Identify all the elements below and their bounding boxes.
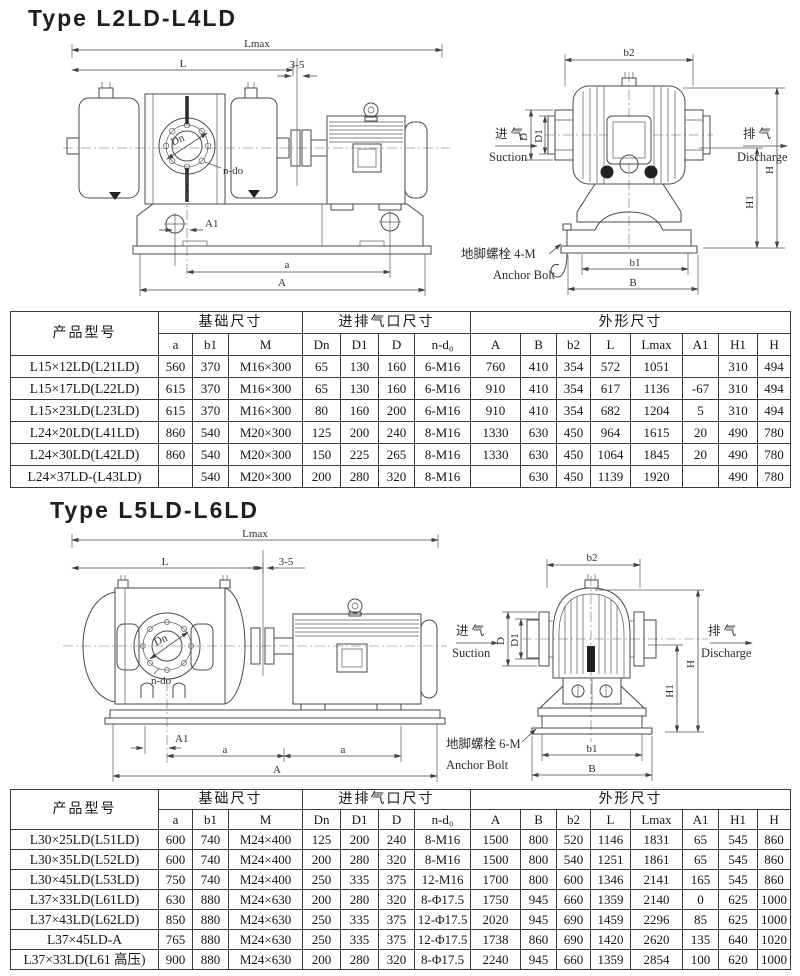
value-cell: 8-M16 bbox=[415, 466, 471, 488]
value-cell: 310 bbox=[719, 378, 758, 400]
value-cell: 682 bbox=[591, 400, 631, 422]
value-cell: 740 bbox=[193, 850, 229, 870]
model-cell: L30×25LD(L51LD) bbox=[11, 830, 159, 850]
dim-label-a: a bbox=[285, 259, 290, 271]
dim-label-a-total: A bbox=[273, 764, 281, 776]
model-cell: L15×17LD(L22LD) bbox=[11, 378, 159, 400]
value-cell: 150 bbox=[303, 444, 341, 466]
value-cell: 200 bbox=[341, 830, 379, 850]
value-cell: 6-M16 bbox=[415, 400, 471, 422]
value-cell: M20×300 bbox=[229, 444, 303, 466]
value-cell: 160 bbox=[379, 356, 415, 378]
value-cell: 8-Φ17.5 bbox=[415, 890, 471, 910]
value-cell: 740 bbox=[193, 870, 229, 890]
value-cell: 945 bbox=[521, 910, 557, 930]
discharge-label-cn: 排 气 bbox=[708, 623, 737, 638]
value-cell: 1000 bbox=[758, 890, 791, 910]
section2-spec-table: 产品型号 基础尺寸 进排气口尺寸 外形尺寸 a b1 M Dn D1 D n-d… bbox=[10, 789, 791, 970]
value-cell: 860 bbox=[758, 870, 791, 890]
header-col: H1 bbox=[719, 334, 758, 356]
value-cell: 625 bbox=[719, 890, 758, 910]
dim-label-gap: 3-5 bbox=[290, 59, 305, 71]
header-col: Lmax bbox=[631, 810, 683, 830]
value-cell: 490 bbox=[719, 422, 758, 444]
catalog-page: Type L2LD-L4LD bbox=[0, 0, 800, 976]
model-cell: L37×43LD(L62LD) bbox=[11, 910, 159, 930]
value-cell: 750 bbox=[159, 870, 193, 890]
value-cell bbox=[683, 466, 719, 488]
suction-label-cn: 进 气 bbox=[495, 126, 524, 141]
value-cell: 130 bbox=[341, 378, 379, 400]
value-cell: 354 bbox=[557, 356, 591, 378]
value-cell: 200 bbox=[303, 850, 341, 870]
header-col: B bbox=[521, 334, 557, 356]
value-cell: 410 bbox=[521, 400, 557, 422]
value-cell: 280 bbox=[341, 850, 379, 870]
discharge-label-en: Discharge bbox=[737, 150, 788, 164]
value-cell: 850 bbox=[159, 910, 193, 930]
dim-label-n-do: n-do bbox=[223, 165, 244, 177]
value-cell: 1204 bbox=[631, 400, 683, 422]
dim-label-lmax: Lmax bbox=[244, 38, 270, 50]
dim-label-h: H bbox=[764, 166, 776, 174]
baseplate bbox=[105, 710, 445, 724]
header-base-group: 基础尺寸 bbox=[159, 790, 303, 810]
dim-label-h: H bbox=[685, 660, 697, 668]
value-cell: 6-M16 bbox=[415, 356, 471, 378]
suction-label-en: Suction bbox=[452, 646, 491, 660]
value-cell: 1615 bbox=[631, 422, 683, 444]
value-cell: 800 bbox=[521, 870, 557, 890]
header-port-group: 进排气口尺寸 bbox=[303, 790, 471, 810]
value-cell: 200 bbox=[341, 422, 379, 444]
value-cell: 1420 bbox=[591, 930, 631, 950]
table-row: L24×30LD(L42LD)860540M20×3001502252658-M… bbox=[11, 444, 791, 466]
value-cell: 354 bbox=[557, 400, 591, 422]
value-cell: 8-M16 bbox=[415, 422, 471, 444]
value-cell: 240 bbox=[379, 422, 415, 444]
dim-label-d1: D1 bbox=[509, 633, 521, 646]
header-col: n-d₀ bbox=[415, 810, 471, 830]
dim-label-l: L bbox=[162, 556, 169, 568]
dimension-lines bbox=[72, 44, 442, 186]
table-row: L37×33LD(L61 高压)900880M24×6302002803208-… bbox=[11, 950, 791, 970]
value-cell: 1738 bbox=[471, 930, 521, 950]
value-cell: 1459 bbox=[591, 910, 631, 930]
table-row: L37×45LD-A765880M24×63025033537512-Φ17.5… bbox=[11, 930, 791, 950]
value-cell: 760 bbox=[471, 356, 521, 378]
value-cell: 310 bbox=[719, 400, 758, 422]
value-cell: 265 bbox=[379, 444, 415, 466]
blower-end-view-diagram-2: b2 D D1 进 气 Suction 排 气 Discharge H H1 地… bbox=[440, 526, 800, 786]
header-col: b2 bbox=[557, 334, 591, 356]
blower-side-view-diagram-2: Lmax L 3-5 Dn n-do A1 a a A bbox=[55, 526, 455, 784]
value-cell: 80 bbox=[303, 400, 341, 422]
value-cell: 600 bbox=[159, 850, 193, 870]
value-cell: 494 bbox=[758, 400, 791, 422]
section2-side-view-drawing: Lmax L 3-5 Dn n-do A1 a a A bbox=[55, 526, 455, 784]
table-row: L15×23LD(L23LD)615370M16×300801602006-M1… bbox=[11, 400, 791, 422]
model-cell: L24×30LD(L42LD) bbox=[11, 444, 159, 466]
value-cell: M16×300 bbox=[229, 356, 303, 378]
value-cell: 375 bbox=[379, 930, 415, 950]
value-cell: 620 bbox=[719, 950, 758, 970]
value-cell: 545 bbox=[719, 870, 758, 890]
value-cell: 740 bbox=[193, 830, 229, 850]
value-cell: 945 bbox=[521, 950, 557, 970]
model-cell: L15×12LD(L21LD) bbox=[11, 356, 159, 378]
value-cell: 65 bbox=[683, 850, 719, 870]
value-cell: 630 bbox=[521, 444, 557, 466]
value-cell: 370 bbox=[193, 378, 229, 400]
value-cell: 310 bbox=[719, 356, 758, 378]
value-cell: 370 bbox=[193, 400, 229, 422]
header-col: D bbox=[379, 334, 415, 356]
value-cell: 880 bbox=[193, 930, 229, 950]
value-cell: 6-M16 bbox=[415, 378, 471, 400]
header-model: 产品型号 bbox=[11, 790, 159, 830]
value-cell: 860 bbox=[758, 830, 791, 850]
value-cell: 540 bbox=[557, 850, 591, 870]
table-row: L15×12LD(L21LD)560370M16×300651301606-M1… bbox=[11, 356, 791, 378]
header-model: 产品型号 bbox=[11, 312, 159, 356]
machine-body bbox=[522, 574, 708, 742]
value-cell: 1359 bbox=[591, 950, 631, 970]
value-cell: 2240 bbox=[471, 950, 521, 970]
header-outline-group: 外形尺寸 bbox=[471, 790, 791, 810]
value-cell: 800 bbox=[521, 830, 557, 850]
value-cell: 1845 bbox=[631, 444, 683, 466]
value-cell: 765 bbox=[159, 930, 193, 950]
section2-end-view-drawing: b2 D D1 进 气 Suction 排 气 Discharge H H1 地… bbox=[440, 526, 800, 786]
value-cell: 8-M16 bbox=[415, 444, 471, 466]
header-col: H bbox=[758, 810, 791, 830]
value-cell: 125 bbox=[303, 830, 341, 850]
value-cell: M24×400 bbox=[229, 850, 303, 870]
value-cell: 945 bbox=[521, 890, 557, 910]
value-cell: 335 bbox=[341, 930, 379, 950]
value-cell: 320 bbox=[379, 466, 415, 488]
value-cell: M24×630 bbox=[229, 910, 303, 930]
value-cell: 160 bbox=[341, 400, 379, 422]
value-cell: 600 bbox=[159, 830, 193, 850]
header-outline-group: 外形尺寸 bbox=[471, 312, 791, 334]
value-cell: 800 bbox=[521, 850, 557, 870]
value-cell: 1861 bbox=[631, 850, 683, 870]
table-row: L37×33LD(L61LD)630880M24×6302002803208-Φ… bbox=[11, 890, 791, 910]
value-cell: 225 bbox=[341, 444, 379, 466]
table-row: L24×37LD-(L43LD)540M20×3002002803208-M16… bbox=[11, 466, 791, 488]
table-row: L30×25LD(L51LD)600740M24×4001252002408-M… bbox=[11, 830, 791, 850]
value-cell: 1700 bbox=[471, 870, 521, 890]
value-cell: 125 bbox=[303, 422, 341, 444]
value-cell: 690 bbox=[557, 910, 591, 930]
motor bbox=[327, 103, 427, 210]
header-col: L bbox=[591, 810, 631, 830]
value-cell: 200 bbox=[303, 890, 341, 910]
value-cell: M16×300 bbox=[229, 378, 303, 400]
value-cell: M24×630 bbox=[229, 930, 303, 950]
value-cell: 165 bbox=[683, 870, 719, 890]
value-cell: 1136 bbox=[631, 378, 683, 400]
table-row: L37×43LD(L62LD)850880M24×63025033537512-… bbox=[11, 910, 791, 930]
dim-label-b1: b1 bbox=[587, 743, 598, 755]
value-cell: 8-M16 bbox=[415, 830, 471, 850]
value-cell: 320 bbox=[379, 890, 415, 910]
value-cell: 354 bbox=[557, 378, 591, 400]
value-cell: 65 bbox=[683, 830, 719, 850]
header-col: Dn bbox=[303, 810, 341, 830]
blower-end-view-diagram: b2 D D1 进 气 Suction 排 气 Discharge H H1 地… bbox=[455, 36, 800, 302]
value-cell: 1500 bbox=[471, 850, 521, 870]
drawing-labels: Lmax L 3-5 Dn n-do A1 a a A bbox=[151, 528, 346, 776]
value-cell: 335 bbox=[341, 910, 379, 930]
value-cell: 1020 bbox=[758, 930, 791, 950]
header-col: A1 bbox=[683, 810, 719, 830]
value-cell: 630 bbox=[521, 422, 557, 444]
value-cell bbox=[159, 466, 193, 488]
suction-label-en: Suction bbox=[489, 150, 528, 164]
table-row: L15×17LD(L22LD)615370M16×300651301606-M1… bbox=[11, 378, 791, 400]
value-cell: 130 bbox=[341, 356, 379, 378]
header-port-group: 进排气口尺寸 bbox=[303, 312, 471, 334]
value-cell: 200 bbox=[303, 950, 341, 970]
header-col: D bbox=[379, 810, 415, 830]
header-col: B bbox=[521, 810, 557, 830]
dim-label-a-total: A bbox=[278, 277, 286, 289]
value-cell: 494 bbox=[758, 356, 791, 378]
table-row: L30×35LD(L52LD)600740M24×4002002803208-M… bbox=[11, 850, 791, 870]
value-cell: 20 bbox=[683, 444, 719, 466]
header-col: M bbox=[229, 810, 303, 830]
model-cell: L30×45LD(L53LD) bbox=[11, 870, 159, 890]
value-cell: 320 bbox=[379, 850, 415, 870]
value-cell: 410 bbox=[521, 356, 557, 378]
dim-label-b: B bbox=[629, 277, 636, 289]
header-col: H1 bbox=[719, 810, 758, 830]
value-cell: 900 bbox=[159, 950, 193, 970]
value-cell: 250 bbox=[303, 870, 341, 890]
value-cell: 572 bbox=[591, 356, 631, 378]
value-cell: 12-M16 bbox=[415, 870, 471, 890]
value-cell: 860 bbox=[758, 850, 791, 870]
pedestal bbox=[551, 184, 697, 277]
value-cell: 490 bbox=[719, 466, 758, 488]
value-cell: 450 bbox=[557, 466, 591, 488]
header-col: b1 bbox=[193, 334, 229, 356]
value-cell: 280 bbox=[341, 466, 379, 488]
value-cell: 1000 bbox=[758, 910, 791, 930]
value-cell: -67 bbox=[683, 378, 719, 400]
dim-label-gap: 3-5 bbox=[279, 556, 294, 568]
value-cell: 1750 bbox=[471, 890, 521, 910]
model-cell: L15×23LD(L23LD) bbox=[11, 400, 159, 422]
dimension-lines bbox=[72, 534, 438, 676]
value-cell: 1146 bbox=[591, 830, 631, 850]
value-cell: 65 bbox=[303, 378, 341, 400]
value-cell: 200 bbox=[303, 466, 341, 488]
model-cell: L24×37LD-(L43LD) bbox=[11, 466, 159, 488]
value-cell: 1500 bbox=[471, 830, 521, 850]
dim-label-l: L bbox=[180, 58, 187, 70]
value-cell: 880 bbox=[193, 890, 229, 910]
section2-title: Type L5LD-L6LD bbox=[50, 497, 259, 524]
value-cell: 545 bbox=[719, 850, 758, 870]
value-cell: 335 bbox=[341, 870, 379, 890]
value-cell: 1920 bbox=[631, 466, 683, 488]
value-cell: 690 bbox=[557, 930, 591, 950]
dim-label-b2: b2 bbox=[624, 47, 635, 59]
value-cell: 2140 bbox=[631, 890, 683, 910]
value-cell: 780 bbox=[758, 444, 791, 466]
value-cell: 410 bbox=[521, 378, 557, 400]
value-cell: 617 bbox=[591, 378, 631, 400]
value-cell: 20 bbox=[683, 422, 719, 444]
value-cell: 450 bbox=[557, 422, 591, 444]
dim-label-d: D bbox=[495, 637, 507, 645]
value-cell: 250 bbox=[303, 910, 341, 930]
baseplate bbox=[133, 204, 431, 254]
value-cell: M24×630 bbox=[229, 890, 303, 910]
header-col: a bbox=[159, 334, 193, 356]
model-cell: L24×20LD(L41LD) bbox=[11, 422, 159, 444]
model-cell: L30×35LD(L52LD) bbox=[11, 850, 159, 870]
header-col: a bbox=[159, 810, 193, 830]
value-cell: 160 bbox=[379, 378, 415, 400]
value-cell: 860 bbox=[159, 422, 193, 444]
dim-label-h1: H1 bbox=[744, 195, 756, 208]
value-cell: 910 bbox=[471, 378, 521, 400]
value-cell: 540 bbox=[193, 466, 229, 488]
value-cell: 320 bbox=[379, 950, 415, 970]
value-cell: 630 bbox=[521, 466, 557, 488]
header-col: D1 bbox=[341, 810, 379, 830]
discharge-label-cn: 排 气 bbox=[743, 126, 772, 141]
value-cell: 630 bbox=[159, 890, 193, 910]
header-base-group: 基础尺寸 bbox=[159, 312, 303, 334]
header-col: Lmax bbox=[631, 334, 683, 356]
value-cell: 600 bbox=[557, 870, 591, 890]
value-cell: 2020 bbox=[471, 910, 521, 930]
value-cell: 240 bbox=[379, 830, 415, 850]
dim-label-b2: b2 bbox=[587, 552, 598, 564]
blower-assembly bbox=[63, 575, 447, 704]
header-col: Dn bbox=[303, 334, 341, 356]
dim-label-a1: A1 bbox=[175, 733, 188, 745]
value-cell: 880 bbox=[193, 910, 229, 930]
value-cell: 375 bbox=[379, 870, 415, 890]
value-cell: 780 bbox=[758, 422, 791, 444]
value-cell: 860 bbox=[159, 444, 193, 466]
header-col: b2 bbox=[557, 810, 591, 830]
value-cell: M24×630 bbox=[229, 950, 303, 970]
anchor-bolt-label-cn: 地脚螺栓 4-M bbox=[461, 246, 536, 261]
header-col: b1 bbox=[193, 810, 229, 830]
value-cell bbox=[471, 466, 521, 488]
value-cell: 1330 bbox=[471, 444, 521, 466]
value-cell: 964 bbox=[591, 422, 631, 444]
value-cell: 2296 bbox=[631, 910, 683, 930]
header-col: n-d₀ bbox=[415, 334, 471, 356]
value-cell: 135 bbox=[683, 930, 719, 950]
value-cell: 0 bbox=[683, 890, 719, 910]
value-cell: 1330 bbox=[471, 422, 521, 444]
header-col: A bbox=[471, 334, 521, 356]
value-cell: 12-Φ17.5 bbox=[415, 910, 471, 930]
value-cell: 540 bbox=[193, 422, 229, 444]
suction-label-cn: 进 气 bbox=[456, 623, 485, 638]
header-col: A bbox=[471, 810, 521, 830]
value-cell: 8-Φ17.5 bbox=[415, 950, 471, 970]
dim-label-b: B bbox=[588, 763, 595, 775]
blower-assembly bbox=[63, 82, 450, 204]
anchor-bolt-label-en: Anchor Bolt bbox=[493, 268, 556, 282]
value-cell: 490 bbox=[719, 444, 758, 466]
dim-label-h1: H1 bbox=[664, 684, 676, 697]
table-row: L24×20LD(L41LD)860540M20×3001252002408-M… bbox=[11, 422, 791, 444]
anchor-bolt-label-en: Anchor Bolt bbox=[446, 758, 509, 772]
dim-label-lmax: Lmax bbox=[242, 528, 268, 540]
value-cell: 560 bbox=[159, 356, 193, 378]
header-col: A1 bbox=[683, 334, 719, 356]
value-cell: M24×400 bbox=[229, 830, 303, 850]
dim-label-a-right: a bbox=[341, 744, 346, 756]
value-cell: 375 bbox=[379, 910, 415, 930]
value-cell: 1359 bbox=[591, 890, 631, 910]
value-cell: 450 bbox=[557, 444, 591, 466]
value-cell: 860 bbox=[521, 930, 557, 950]
value-cell: 280 bbox=[341, 950, 379, 970]
value-cell: 2854 bbox=[631, 950, 683, 970]
value-cell: 8-M16 bbox=[415, 850, 471, 870]
value-cell: 1064 bbox=[591, 444, 631, 466]
header-col: D1 bbox=[341, 334, 379, 356]
header-col: M bbox=[229, 334, 303, 356]
header-col: H bbox=[758, 334, 791, 356]
model-cell: L37×45LD-A bbox=[11, 930, 159, 950]
value-cell: M20×300 bbox=[229, 466, 303, 488]
model-cell: L37×33LD(L61LD) bbox=[11, 890, 159, 910]
value-cell: 1139 bbox=[591, 466, 631, 488]
machine-body bbox=[545, 72, 713, 252]
value-cell: 2141 bbox=[631, 870, 683, 890]
section1-end-view-drawing: b2 D D1 进 气 Suction 排 气 Discharge H H1 地… bbox=[455, 36, 800, 302]
value-cell: 910 bbox=[471, 400, 521, 422]
value-cell: 5 bbox=[683, 400, 719, 422]
motor bbox=[293, 599, 437, 710]
anchor-bolt-label-cn: 地脚螺栓 6-M bbox=[446, 736, 521, 751]
value-cell: 65 bbox=[303, 356, 341, 378]
dim-label-n-do: n-do bbox=[151, 675, 172, 687]
blower-side-view-diagram: Lmax L 3-5 Dn n-do A1 a A bbox=[55, 38, 455, 300]
discharge-label-en: Discharge bbox=[701, 646, 752, 660]
value-cell: 660 bbox=[557, 890, 591, 910]
table-row: L30×45LD(L53LD)750740M24×40025033537512-… bbox=[11, 870, 791, 890]
value-cell: 280 bbox=[341, 890, 379, 910]
value-cell: 880 bbox=[193, 950, 229, 970]
value-cell: 615 bbox=[159, 378, 193, 400]
value-cell: 370 bbox=[193, 356, 229, 378]
section1-spec-table: 产品型号 基础尺寸 进排气口尺寸 外形尺寸 a b1 M Dn D1 D n-d… bbox=[10, 311, 791, 488]
value-cell: M20×300 bbox=[229, 422, 303, 444]
section1-side-view-drawing: Lmax L 3-5 Dn n-do A1 a A bbox=[55, 38, 455, 300]
value-cell: 494 bbox=[758, 378, 791, 400]
value-cell: 625 bbox=[719, 910, 758, 930]
model-cell: L37×33LD(L61 高压) bbox=[11, 950, 159, 970]
value-cell bbox=[683, 356, 719, 378]
value-cell: 200 bbox=[379, 400, 415, 422]
value-cell: M24×400 bbox=[229, 870, 303, 890]
